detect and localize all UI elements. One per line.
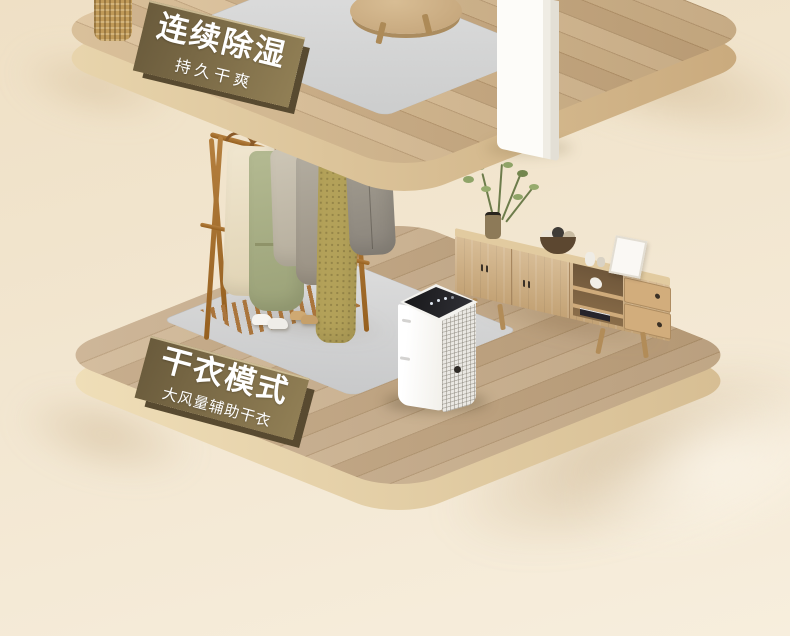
cabinet-door-handle bbox=[523, 280, 525, 287]
vent-slot bbox=[400, 356, 410, 361]
yarn-basket bbox=[540, 228, 580, 258]
cabinet-door-seam bbox=[569, 262, 570, 318]
product-scene: 连续除湿 持久干爽 干衣模式 大风量辅助干衣 bbox=[0, 0, 790, 636]
white-cup bbox=[590, 276, 602, 290]
panel-indicator-light bbox=[437, 299, 440, 302]
cabinet-door-seam bbox=[511, 249, 512, 305]
drawer-knob bbox=[657, 322, 662, 328]
plant-leaf bbox=[463, 176, 474, 183]
white-column bbox=[497, 0, 559, 161]
plant-leaf bbox=[517, 170, 528, 177]
drawer-knob bbox=[655, 293, 660, 299]
yarn-bowl bbox=[540, 237, 576, 254]
plant-vase bbox=[485, 212, 501, 239]
woven-basket bbox=[94, 0, 132, 41]
plant-leaf bbox=[503, 162, 513, 168]
plant-leaf bbox=[513, 194, 523, 200]
mini-vase bbox=[585, 252, 595, 266]
panel-indicator-light bbox=[451, 296, 454, 299]
plant-leaf bbox=[481, 186, 491, 192]
cabinet-door-handle bbox=[528, 281, 530, 288]
dehumidifier bbox=[392, 278, 484, 410]
cabinet-door-handle bbox=[481, 264, 483, 271]
slipper bbox=[301, 315, 318, 324]
panel-indicator-light bbox=[430, 302, 433, 305]
mini-vase bbox=[597, 257, 605, 267]
sneaker bbox=[268, 318, 288, 329]
plant-leaf bbox=[529, 184, 539, 190]
panel-indicator-light bbox=[444, 297, 447, 300]
vent-slot bbox=[402, 319, 411, 323]
grille-indicator bbox=[454, 366, 461, 373]
cabinet-door-handle bbox=[486, 265, 488, 272]
